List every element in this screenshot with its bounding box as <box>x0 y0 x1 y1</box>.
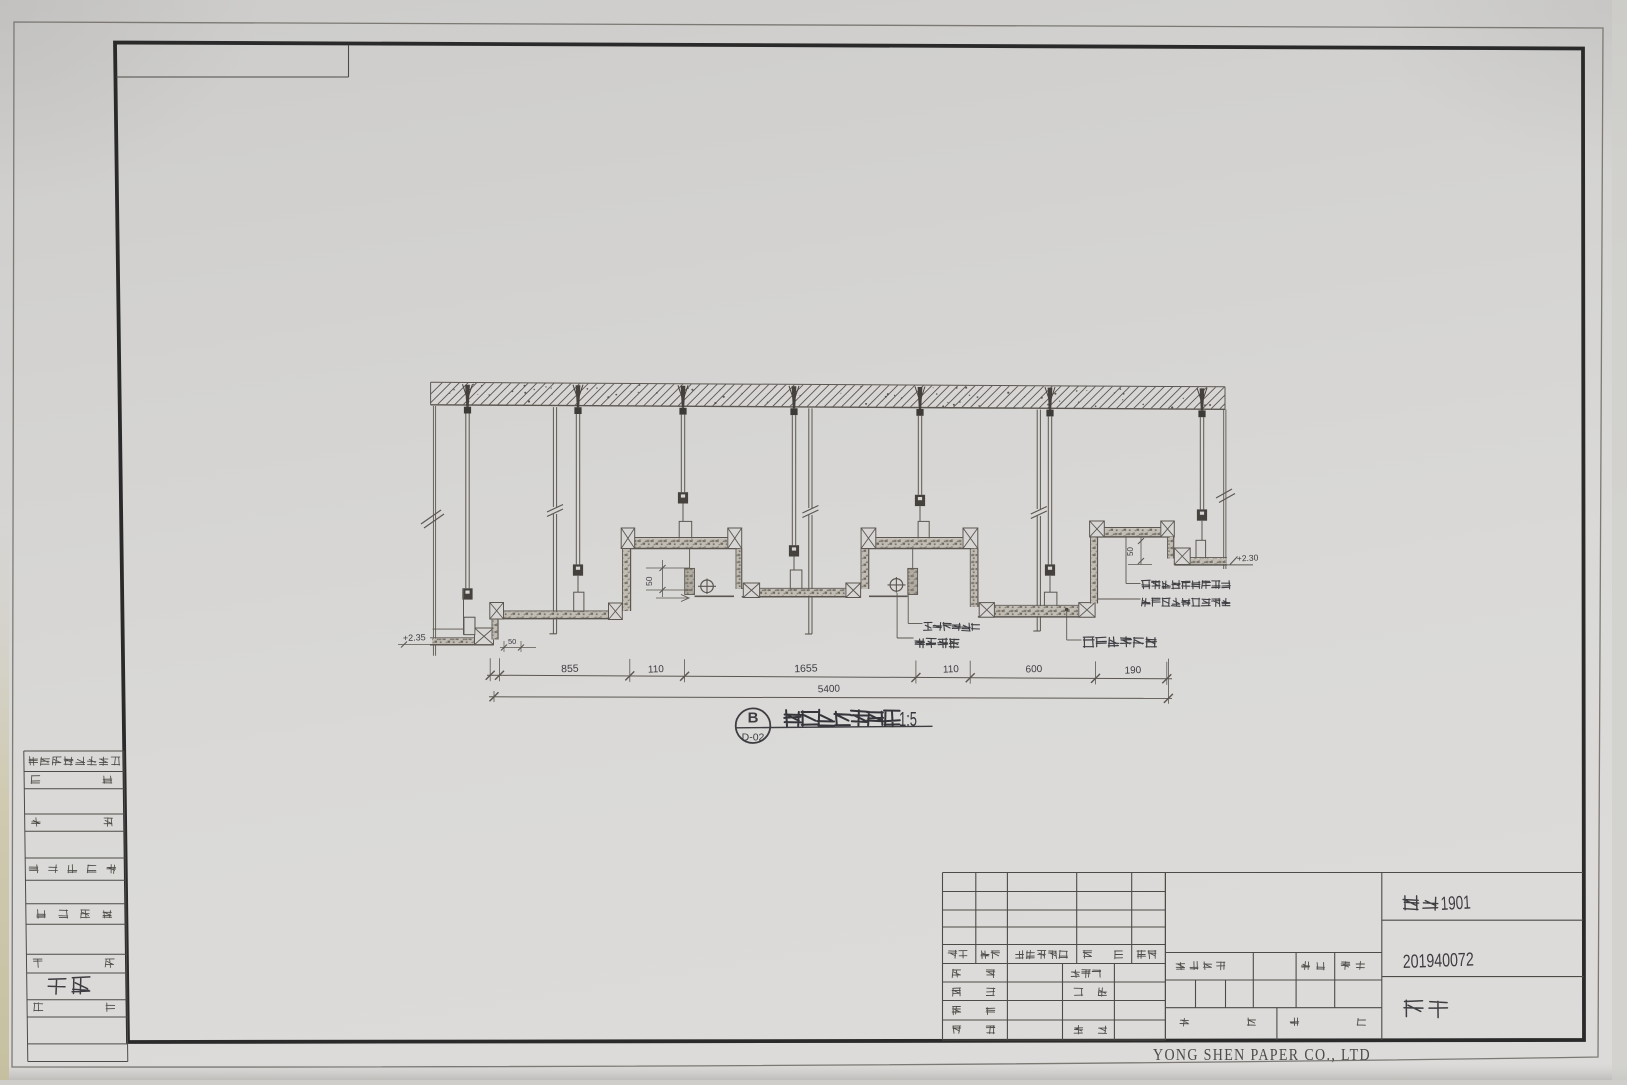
svg-text:1:5: 1:5 <box>899 709 917 731</box>
svg-text:1655: 1655 <box>794 662 818 675</box>
svg-text:110: 110 <box>943 664 960 676</box>
svg-text:+2.35: +2.35 <box>403 632 426 643</box>
svg-text:600: 600 <box>1025 664 1042 676</box>
svg-text:190: 190 <box>1124 665 1141 677</box>
svg-text:110: 110 <box>648 664 665 676</box>
svg-text:+2.30: +2.30 <box>1237 552 1259 563</box>
svg-text:1901: 1901 <box>1440 892 1471 915</box>
svg-text:201940072: 201940072 <box>1402 950 1474 973</box>
svg-text:B: B <box>748 710 759 727</box>
svg-text:50: 50 <box>508 637 516 646</box>
svg-text:YONG SHEN PAPER CO., LTD: YONG SHEN PAPER CO., LTD <box>1153 1045 1371 1064</box>
svg-text:50: 50 <box>644 576 654 586</box>
svg-text:5400: 5400 <box>818 684 841 696</box>
svg-text:D-02: D-02 <box>742 732 765 744</box>
svg-text:855: 855 <box>561 663 579 676</box>
svg-text:50: 50 <box>1126 547 1135 556</box>
